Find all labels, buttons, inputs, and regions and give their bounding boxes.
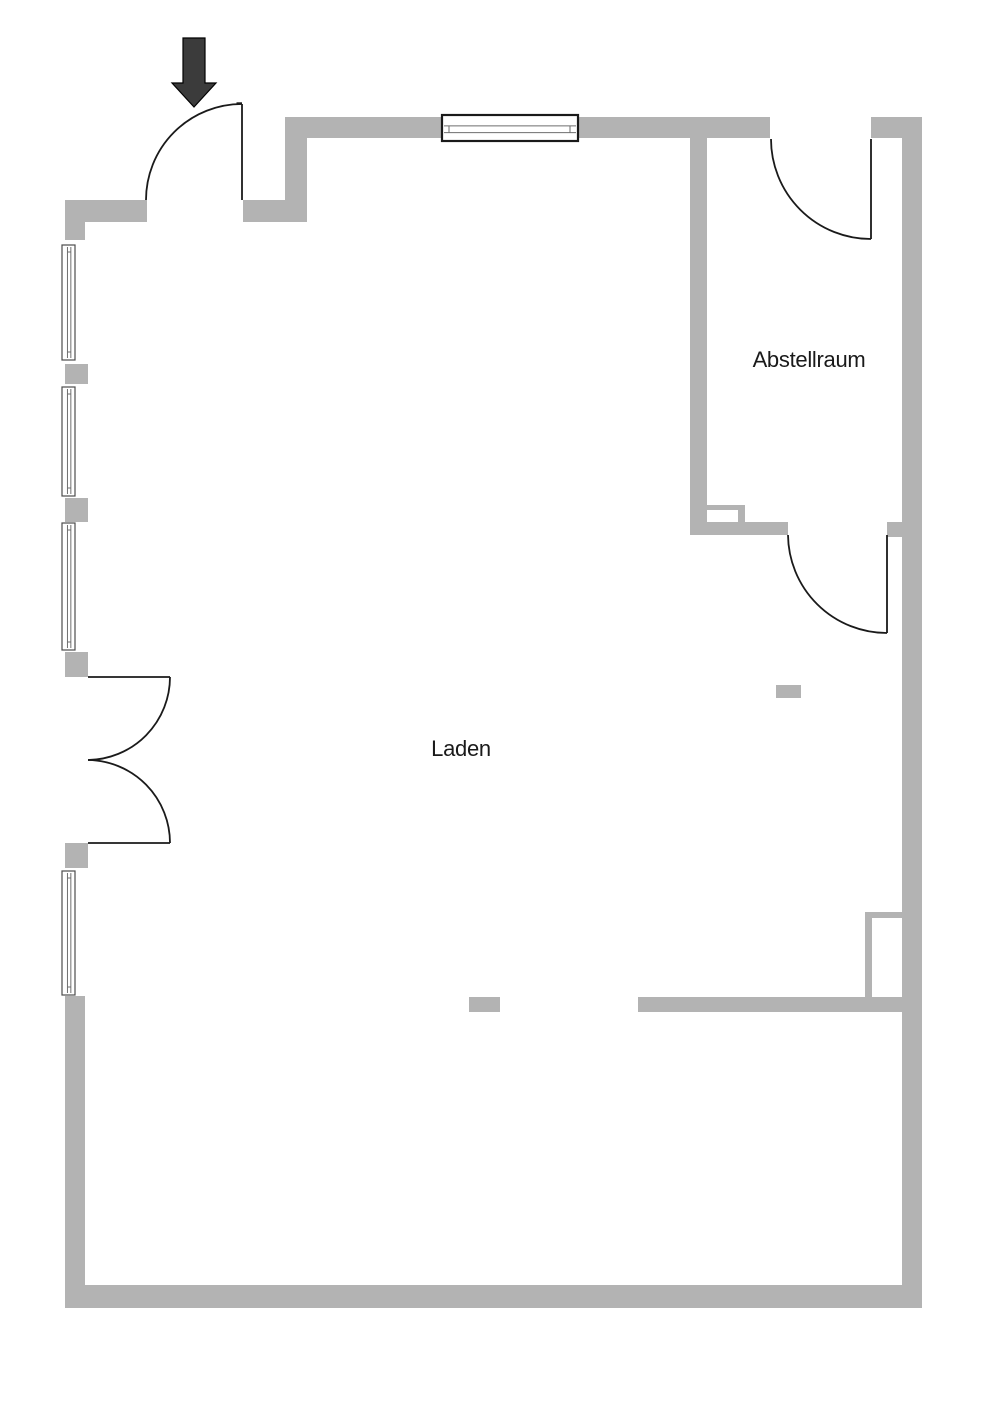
door-double-upper-leaf	[88, 677, 170, 760]
room-label-abstellraum: Abstellraum	[753, 347, 866, 372]
door-abstellraum-top	[771, 139, 871, 239]
wall-door-stub	[887, 522, 902, 537]
wall-interior-lower	[638, 997, 902, 1012]
door-double-lower-leaf	[88, 760, 170, 843]
wall-left-lower	[65, 996, 85, 1285]
wall-pier-1	[65, 222, 85, 240]
wall-pier-3	[65, 498, 88, 522]
window-left-1	[62, 245, 75, 360]
wall-pier-2	[65, 364, 88, 384]
window-left-3	[62, 523, 75, 650]
wall-pier-5	[65, 843, 88, 868]
entrance-arrow	[172, 38, 216, 107]
wall-hatch-right	[738, 510, 745, 522]
window-left-4	[62, 871, 75, 995]
window-top	[442, 115, 578, 141]
door-abstellraum-bottom	[788, 535, 887, 633]
wall-abstellraum-bottom	[690, 522, 788, 535]
floor-plan-svg: LadenAbstellraum	[0, 0, 1000, 1415]
wall-abstellraum-left	[690, 138, 707, 535]
wall-top-left	[65, 200, 147, 222]
wall-niche-left	[865, 912, 872, 1010]
room-label-laden: Laden	[431, 736, 491, 761]
wall-bottom	[65, 1285, 922, 1308]
column-right	[776, 685, 801, 698]
door-entrance	[146, 104, 242, 200]
wall-niche-top	[865, 912, 902, 918]
wall-hatch-top	[707, 505, 745, 510]
floor-plan: LadenAbstellraum	[0, 0, 1000, 1415]
window-left-2	[62, 387, 75, 496]
column-shop	[469, 997, 500, 1012]
wall-right	[902, 117, 922, 1308]
wall-pier-4	[65, 652, 88, 677]
